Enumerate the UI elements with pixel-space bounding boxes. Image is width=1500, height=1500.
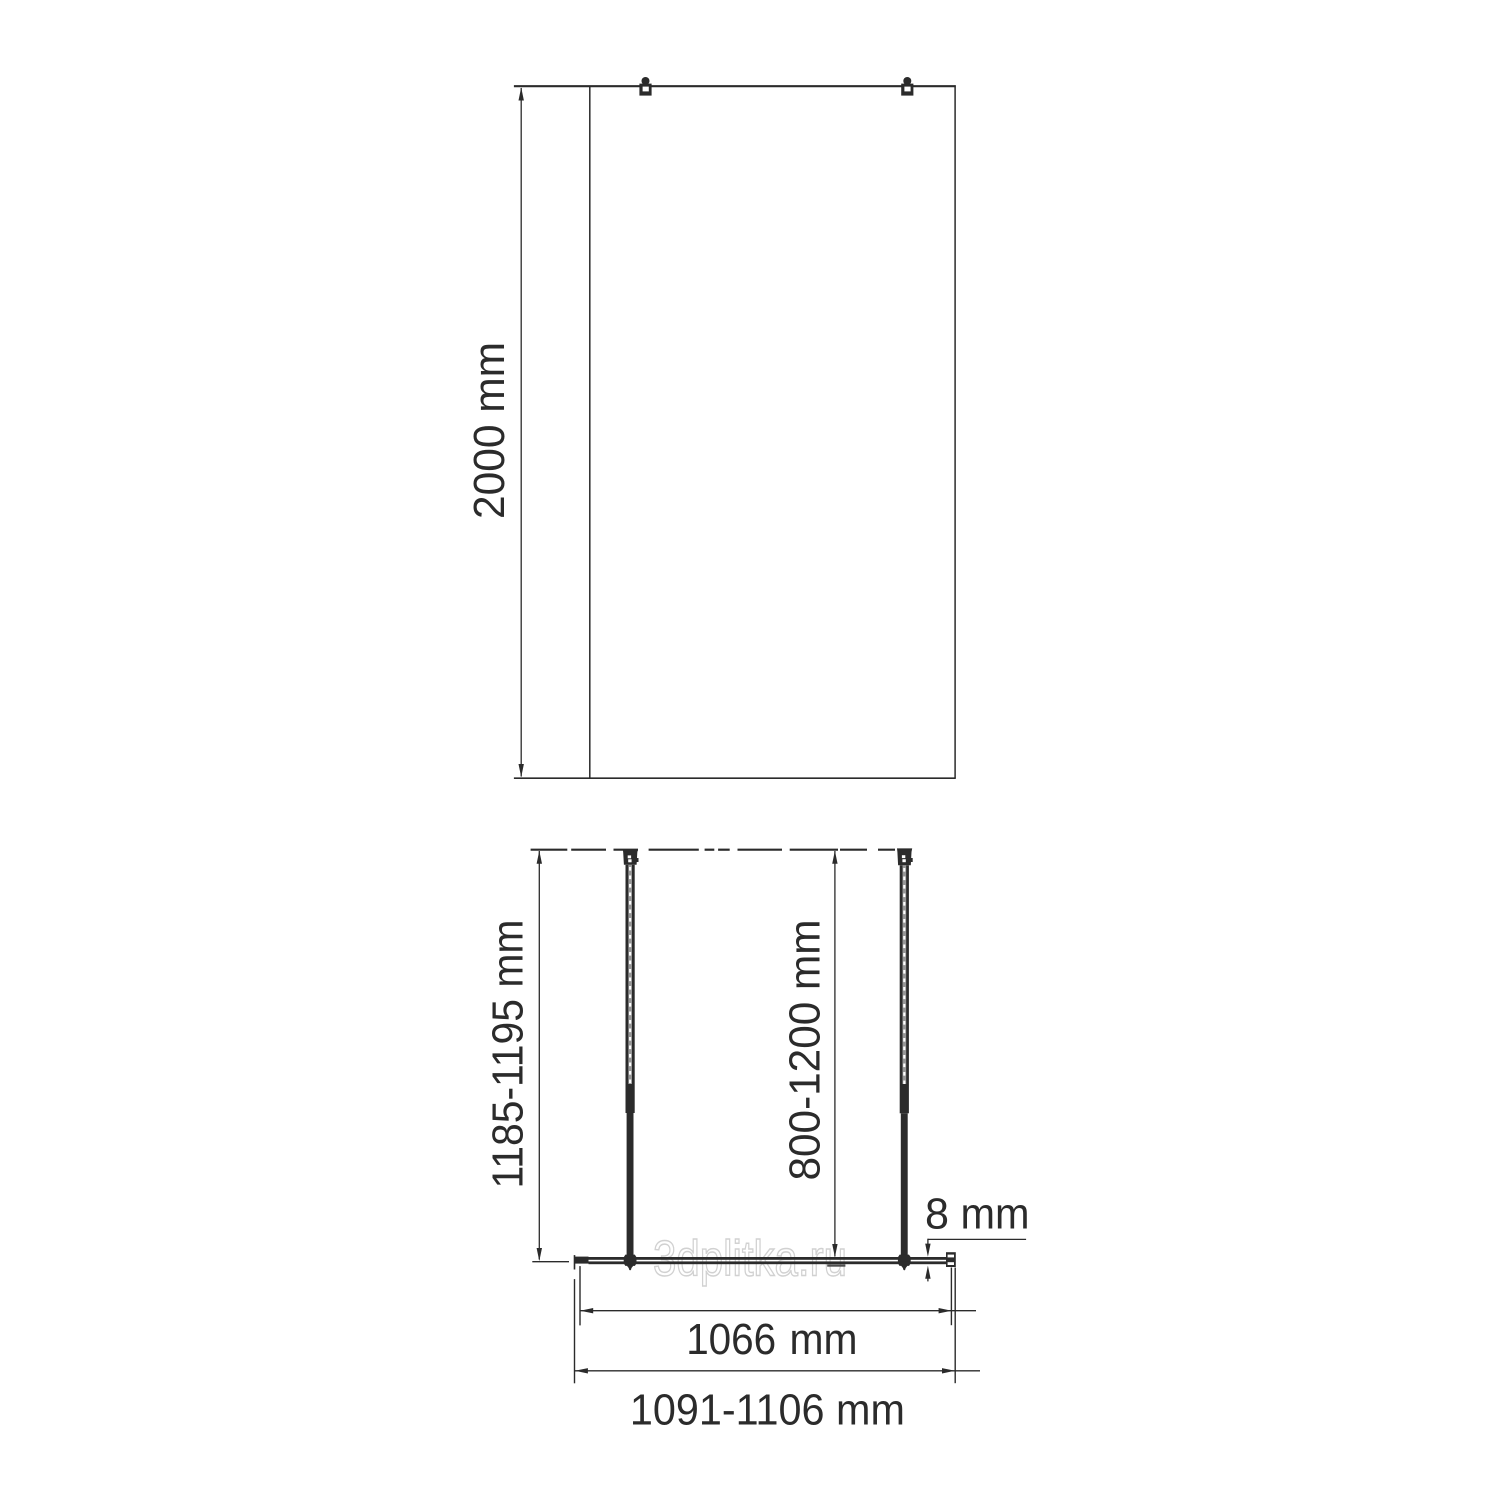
- svg-text:800-1200 mm: 800-1200 mm: [781, 920, 830, 1181]
- svg-text:1066: 1066: [686, 1315, 776, 1364]
- svg-text:8: 8: [925, 1189, 949, 1238]
- svg-text:mm: mm: [790, 1315, 858, 1364]
- svg-text:1185-1195 mm: 1185-1195 mm: [483, 920, 532, 1189]
- svg-text:2000 mm: 2000 mm: [465, 342, 514, 519]
- svg-text:1091-1106 mm: 1091-1106 mm: [630, 1385, 905, 1434]
- svg-text:mm: mm: [961, 1189, 1030, 1238]
